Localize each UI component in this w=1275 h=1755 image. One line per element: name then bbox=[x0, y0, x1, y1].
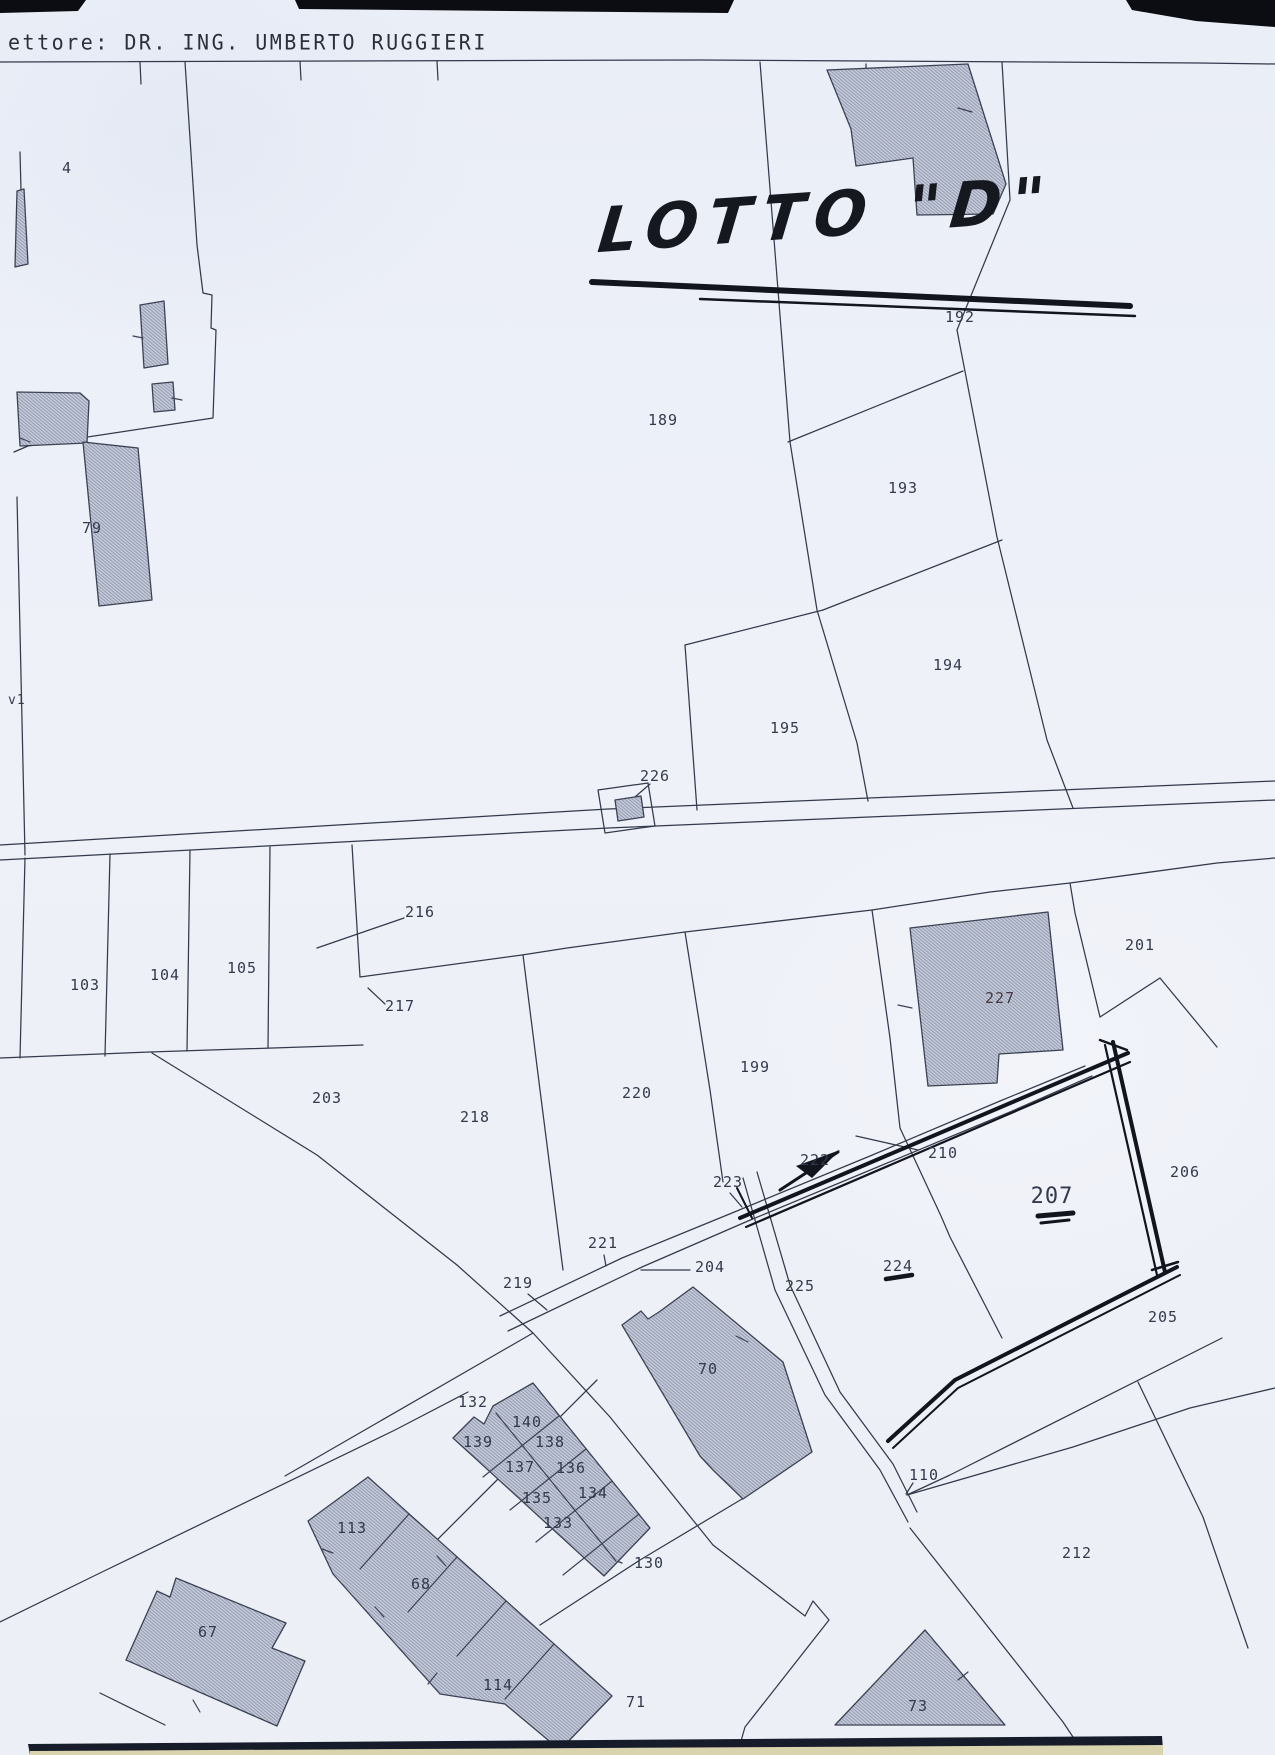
parcel-label-192: 192 bbox=[945, 308, 975, 326]
scan-bar-mid bbox=[295, 0, 734, 13]
divider-103 bbox=[20, 858, 25, 1058]
scanned-cadastral-page: 479v119218919319419522621621710310410520… bbox=[0, 0, 1275, 1755]
parcel-label-194: 194 bbox=[933, 656, 963, 674]
bottom-left-road bbox=[100, 1693, 165, 1725]
left-seg bbox=[20, 152, 21, 190]
divider-220-199 bbox=[685, 932, 723, 1182]
building-67 bbox=[126, 1578, 305, 1726]
parcel-label-226: 226 bbox=[640, 767, 670, 785]
parcel-label-73: 73 bbox=[908, 1697, 928, 1715]
parcel-label-220: 220 bbox=[622, 1084, 652, 1102]
scan-bar-right bbox=[1126, 0, 1275, 27]
parcel-label-103: 103 bbox=[70, 976, 100, 994]
tick-b67 bbox=[193, 1700, 200, 1712]
left-edge-boundary bbox=[17, 497, 25, 855]
building-sliver bbox=[15, 189, 28, 267]
south-of-road-boundary bbox=[360, 858, 1275, 977]
parcel-label-139: 139 bbox=[463, 1433, 493, 1451]
parcel-label-227: 227 bbox=[985, 989, 1015, 1007]
building-226-inner bbox=[615, 796, 644, 821]
parcel-label-104: 104 bbox=[150, 966, 180, 984]
mark-224 bbox=[886, 1275, 912, 1279]
parcel-label-68: 68 bbox=[411, 1575, 431, 1593]
parcel-label-195: 195 bbox=[770, 719, 800, 737]
surveyor-header-text: ettore: DR. ING. UMBERTO RUGGIERI bbox=[8, 29, 488, 54]
parcel-label-114: 114 bbox=[483, 1676, 513, 1694]
parcel195-west bbox=[685, 645, 697, 810]
parcel-label-218: 218 bbox=[460, 1108, 490, 1126]
parcel-label-130: 130 bbox=[634, 1554, 664, 1572]
top-rule bbox=[0, 60, 1275, 64]
parcel-label-79: 79 bbox=[82, 519, 102, 537]
divider-227-east bbox=[1070, 883, 1100, 1017]
boundary-205-south bbox=[907, 1338, 1222, 1495]
parcel-label-110: 110 bbox=[909, 1466, 939, 1484]
building-small-2 bbox=[152, 382, 175, 412]
top-tick bbox=[140, 62, 141, 84]
parcel-label-137: 137 bbox=[505, 1458, 535, 1476]
parcel-label-203: 203 bbox=[312, 1089, 342, 1107]
parcel-label-207: 207 bbox=[1031, 1184, 1074, 1209]
parcel-label-134: 134 bbox=[578, 1484, 608, 1502]
parcel-label-206: 206 bbox=[1170, 1163, 1200, 1181]
divider-105 bbox=[268, 847, 270, 1048]
lot-boundary-south bbox=[888, 1267, 1177, 1441]
parcel-label-140: 140 bbox=[512, 1413, 542, 1431]
building-cluster-132-140 bbox=[453, 1383, 650, 1576]
divider-192-193 bbox=[788, 371, 963, 442]
divider-103-104 bbox=[105, 854, 110, 1056]
parcel-label-221: 221 bbox=[588, 1234, 618, 1252]
lot-boundary-steep-2 bbox=[1105, 1045, 1157, 1275]
zigzag-201 bbox=[1100, 978, 1217, 1047]
parcel-label-212: 212 bbox=[1062, 1544, 1092, 1562]
parcel-label-71: 71 bbox=[626, 1693, 646, 1711]
lot-boundary-south-2 bbox=[893, 1275, 1180, 1448]
lot-boundary-steep bbox=[1113, 1042, 1165, 1272]
parcel-label-210: 210 bbox=[928, 1144, 958, 1162]
leader-216 bbox=[317, 918, 404, 948]
parcel-label-113: 113 bbox=[337, 1519, 367, 1537]
parcel-label-67: 67 bbox=[198, 1623, 218, 1641]
parcel-label-223: 223 bbox=[713, 1173, 743, 1191]
parcel-label-v1: v1 bbox=[8, 693, 26, 708]
parcel-label-205: 205 bbox=[1148, 1308, 1178, 1326]
parcel-label-138: 138 bbox=[535, 1433, 565, 1451]
parcel-label-105: 105 bbox=[227, 959, 257, 977]
parcel-label-189: 189 bbox=[648, 411, 678, 429]
parcel-label-193: 193 bbox=[888, 479, 918, 497]
scribble-207 bbox=[1038, 1213, 1073, 1216]
title-underline bbox=[592, 282, 1130, 306]
tick-b227 bbox=[898, 1005, 912, 1008]
tick-221 bbox=[604, 1255, 606, 1266]
scribble-207-2 bbox=[1041, 1220, 1069, 1223]
building-left bbox=[17, 392, 89, 446]
top-tick bbox=[300, 61, 301, 80]
leader-217 bbox=[368, 988, 385, 1004]
parcel-label-199: 199 bbox=[740, 1058, 770, 1076]
parcel-label-132: 132 bbox=[458, 1393, 488, 1411]
parcel-label-216: 216 bbox=[405, 903, 435, 921]
parcel-label-201: 201 bbox=[1125, 936, 1155, 954]
building-small-1 bbox=[140, 301, 168, 368]
divider-104-105 bbox=[187, 850, 190, 1051]
top-tick bbox=[437, 61, 438, 80]
parcel-label-4: 4 bbox=[62, 159, 72, 177]
parcel-label-217: 217 bbox=[385, 997, 415, 1015]
parcel-label-204: 204 bbox=[695, 1258, 725, 1276]
line-h-103 bbox=[0, 1045, 363, 1058]
boundary-212-east bbox=[1138, 1382, 1248, 1648]
divider-193-194 bbox=[823, 540, 1002, 610]
parcel-label-136: 136 bbox=[556, 1459, 586, 1477]
parcel-label-133: 133 bbox=[543, 1514, 573, 1532]
parcel-label-219: 219 bbox=[503, 1274, 533, 1292]
parcel-label-70: 70 bbox=[698, 1360, 718, 1378]
parcel195-north bbox=[685, 610, 823, 645]
divider-218-220 bbox=[523, 955, 563, 1270]
divider-105-216 bbox=[352, 845, 360, 977]
scan-bar-left bbox=[0, 0, 86, 13]
parcel-label-222: 222 bbox=[800, 1151, 830, 1169]
parcel-label-224: 224 bbox=[883, 1257, 913, 1275]
parcel-label-225: 225 bbox=[785, 1277, 815, 1295]
parcel-label-135: 135 bbox=[522, 1489, 552, 1507]
